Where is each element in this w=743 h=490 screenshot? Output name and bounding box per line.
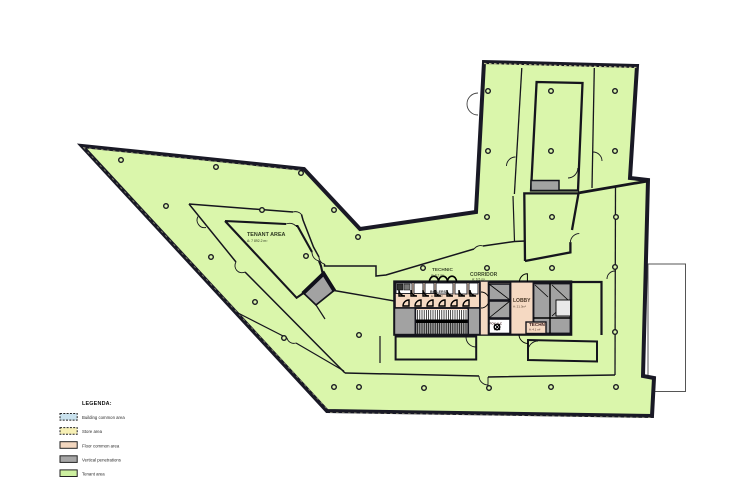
svg-text:LOBBY: LOBBY [513,298,531,304]
svg-text:A: 6.5 m²: A: 6.5 m² [472,278,485,282]
svg-text:BOILERS: BOILERS [430,290,447,294]
svg-text:Vertical penetrations: Vertical penetrations [82,457,121,462]
svg-text:A: 21.1 m²: A: 21.1 m² [431,294,443,298]
svg-text:A: 9.2 m²: A: 9.2 m² [431,274,444,278]
svg-text:Floor common area: Floor common area [82,443,120,448]
svg-text:Tenant area: Tenant area [82,472,105,477]
svg-text:A: 21.3m²: A: 21.3m² [513,305,526,309]
svg-text:A: 4.1 m²: A: 4.1 m² [529,328,540,332]
svg-text:TECHNIC: TECHNIC [432,267,453,272]
svg-text:LEGENDA:: LEGENDA: [82,401,112,407]
svg-text:FOY. A.C: FOY. A.C [490,322,503,326]
svg-text:TECHN: TECHN [529,322,546,327]
svg-text:TENANT AREA: TENANT AREA [247,232,286,238]
svg-text:Store area: Store area [82,429,103,434]
svg-text:A: 7 892.2 m²: A: 7 892.2 m² [247,239,268,243]
svg-text:Building common area: Building common area [82,415,125,420]
